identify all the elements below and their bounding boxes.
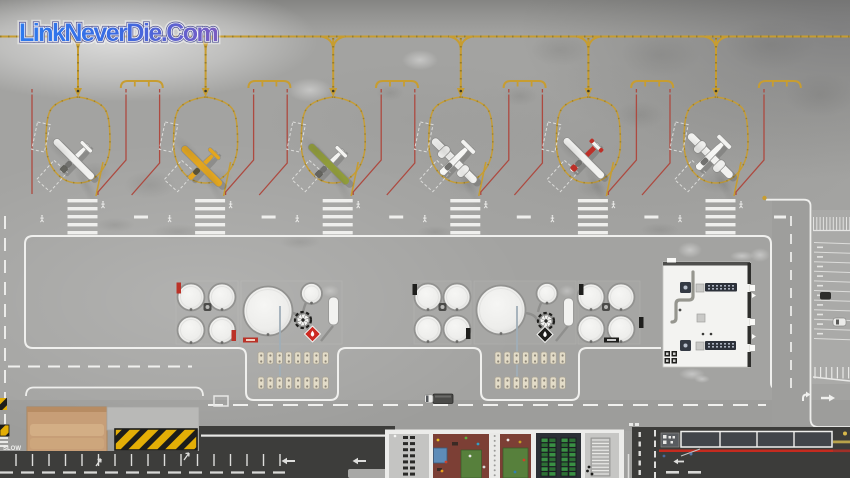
svg-text:SLOW: SLOW: [3, 446, 21, 452]
svg-text:LinkNeverDie.Com: LinkNeverDie.Com: [19, 19, 218, 47]
